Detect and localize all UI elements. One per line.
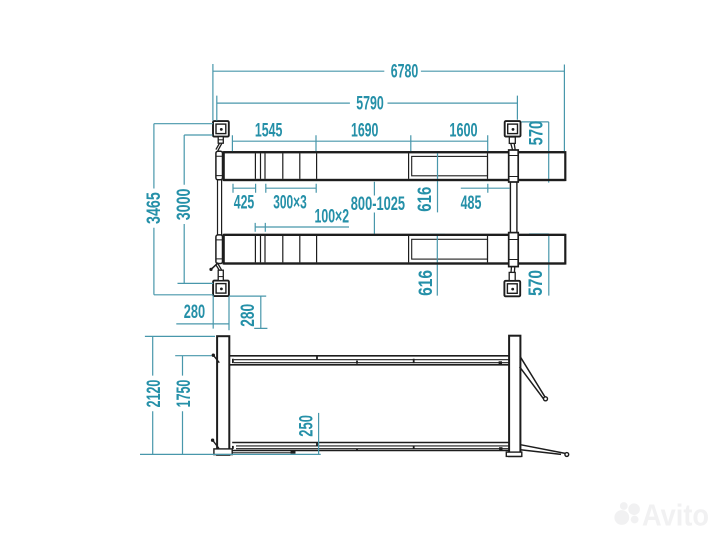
svg-text:280: 280 <box>184 302 205 323</box>
svg-text:1690: 1690 <box>351 121 379 142</box>
svg-text:800-1025: 800-1025 <box>351 194 405 215</box>
svg-text:570: 570 <box>527 121 548 146</box>
svg-text:485: 485 <box>461 193 482 214</box>
svg-text:1545: 1545 <box>255 121 283 142</box>
svg-text:100×2: 100×2 <box>315 206 350 227</box>
svg-text:250: 250 <box>297 415 318 437</box>
svg-text:616: 616 <box>416 270 437 296</box>
svg-text:6780: 6780 <box>391 62 419 83</box>
svg-text:570: 570 <box>526 270 547 296</box>
svg-text:300×3: 300×3 <box>273 193 307 214</box>
svg-text:280: 280 <box>238 304 259 327</box>
svg-text:5790: 5790 <box>356 94 384 115</box>
svg-text:1750: 1750 <box>174 380 195 408</box>
svg-text:1600: 1600 <box>449 121 477 142</box>
svg-text:616: 616 <box>415 187 436 212</box>
svg-text:425: 425 <box>234 193 255 214</box>
svg-text:Avito: Avito <box>642 498 709 533</box>
svg-text:3465: 3465 <box>144 192 165 224</box>
svg-text:3000: 3000 <box>174 189 195 221</box>
svg-text:2120: 2120 <box>144 380 165 408</box>
